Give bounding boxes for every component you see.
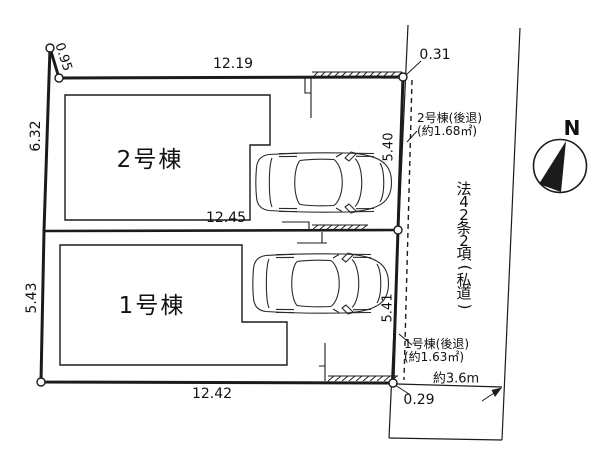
dim-offset-bottom-right: 0.29 [403,392,434,408]
site-plan-page: 0.95 12.19 6.32 12.45 5.43 12.42 5.40 5.… [0,0,600,449]
setback-note-building1-line2: (約1.63㎡) [404,351,469,364]
fence-hatching [312,72,402,381]
compass-icon [534,140,587,193]
dim-edge-top: 12.19 [213,56,253,72]
road-designation-label: 法42条2項(私道) [456,183,471,313]
dim-edge-left-lower: 5.43 [24,282,40,313]
car-icon-lot1 [253,253,389,314]
setback-note-building2-line2: (約1.68㎡) [417,125,482,138]
dim-edge-right-upper: 5.40 [382,133,397,162]
compass-north-label: N [564,116,581,140]
building-1-label: 1号棟 [119,286,186,320]
building-2-label: 2号棟 [117,140,184,174]
dim-offset-top-right: 0.31 [419,47,450,63]
site-plan-drawing [0,0,600,449]
dim-edge-bottom: 12.42 [192,386,232,402]
dim-edge-right-lower: 5.41 [381,294,396,323]
road-width-label: 約3.6m [433,368,479,387]
road-width-arrowhead [492,388,503,398]
car-icon-lot2 [256,152,392,213]
dim-edge-left-upper: 6.32 [28,120,44,151]
dim-edge-middle: 12.45 [206,210,246,226]
setback-note-building1: 1号棟(後退) (約1.63㎡) [404,338,469,364]
setback-note-building2: 2号棟(後退) (約1.68㎡) [417,112,482,138]
setback-dashed-line [404,80,412,380]
lot-divider-line [44,230,398,231]
